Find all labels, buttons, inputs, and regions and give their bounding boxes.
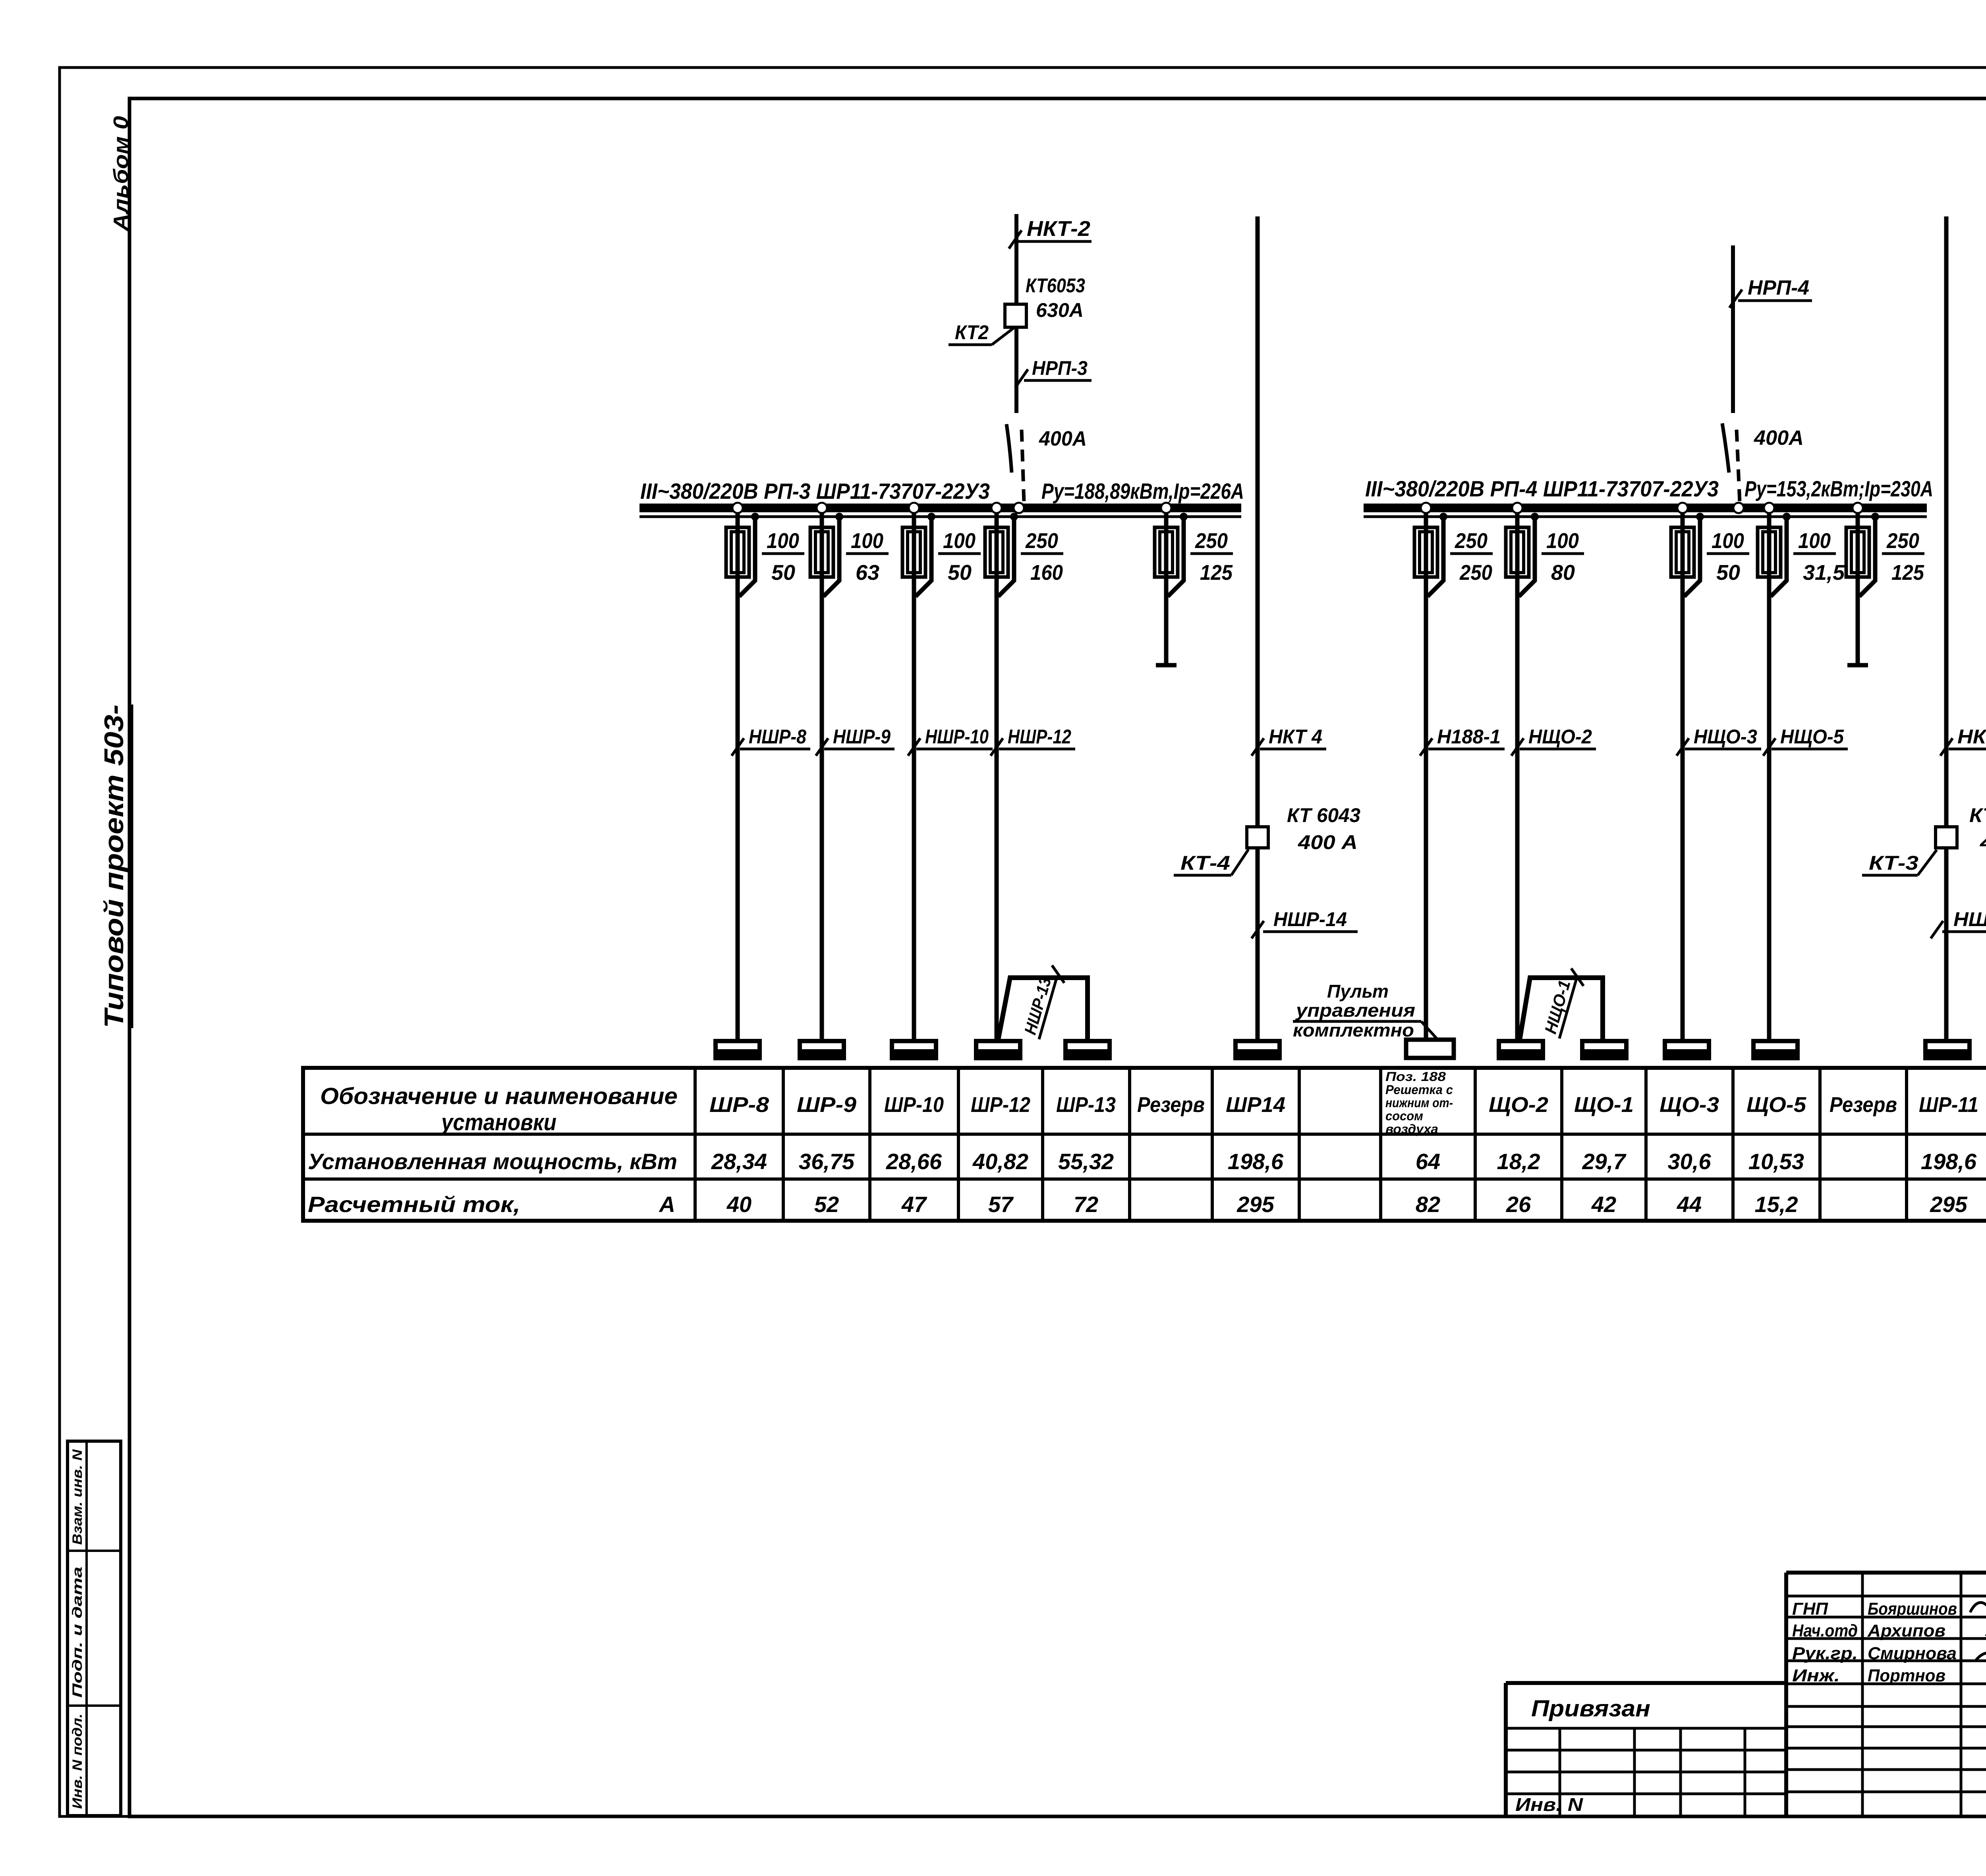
svg-text:Поз. 188: Поз. 188 [1385,1069,1446,1084]
svg-text:КТ-4: КТ-4 [1180,852,1230,874]
svg-text:198,6: 198,6 [1921,1149,1977,1174]
svg-text:Архипов: Архипов [1867,1621,1945,1641]
svg-text:III~380/220В РП-3 ШР11-73707: III~380/220В РП-3 ШР11-73707-22У3 [640,479,990,504]
svg-text:50: 50 [771,561,795,585]
svg-text:Резерв: Резерв [1830,1093,1897,1117]
svg-text:Рук.гр.: Рук.гр. [1792,1644,1858,1663]
svg-text:50: 50 [1716,561,1740,585]
svg-text:400А: 400А [1754,427,1804,450]
svg-text:44: 44 [1677,1192,1702,1217]
svg-text:100: 100 [1546,529,1579,553]
svg-text:НШР-11: НШР-11 [1953,908,1986,930]
svg-text:ШР-10: ШР-10 [884,1093,944,1117]
svg-text:72: 72 [1074,1192,1098,1217]
svg-text:15,2: 15,2 [1755,1192,1798,1217]
svg-text:комплектно: комплектно [1293,1020,1414,1040]
svg-text:Альбом 0: Альбом 0 [110,116,133,232]
svg-text:250: 250 [1455,529,1488,553]
svg-text:НШР-14: НШР-14 [1273,908,1347,930]
svg-text:Инв. N подл.: Инв. N подл. [70,1714,85,1809]
svg-text:ШР-13: ШР-13 [1056,1093,1116,1117]
svg-text:ЩО-1: ЩО-1 [1574,1093,1634,1117]
svg-text:НКТ3: НКТ3 [1957,726,1986,748]
svg-text:36,75: 36,75 [799,1149,855,1174]
svg-text:Решетка с: Решетка с [1385,1083,1453,1097]
svg-text:ШР-12: ШР-12 [971,1093,1030,1117]
svg-text:Взам. инв. N: Взам. инв. N [70,1449,85,1545]
svg-text:НШР-8: НШР-8 [749,726,806,748]
svg-text:Резерв: Резерв [1137,1093,1205,1117]
svg-text:Н188-1: Н188-1 [1437,726,1501,748]
svg-text:55,32: 55,32 [1058,1149,1114,1174]
svg-text:КТ 6043: КТ 6043 [1969,804,1986,826]
svg-text:50: 50 [948,561,972,585]
svg-text:250: 250 [1195,529,1228,553]
svg-text:ШР-9: ШР-9 [797,1093,856,1117]
svg-text:28,66: 28,66 [886,1149,942,1174]
svg-text:Установленная мощность, кВт: Установленная мощность, кВт [308,1149,677,1174]
svg-text:250: 250 [1459,561,1492,585]
svg-text:НКТ 4: НКТ 4 [1269,726,1322,748]
svg-text:Инж.: Инж. [1792,1666,1840,1685]
svg-text:НЩО-3: НЩО-3 [1694,726,1757,748]
svg-text:Типовой проект 503-: Типовой проект 503- [99,704,129,1028]
svg-text:ЩО-3: ЩО-3 [1660,1093,1719,1117]
svg-text:КТ2: КТ2 [955,321,989,344]
svg-text:80: 80 [1551,561,1575,585]
svg-text:40: 40 [726,1192,752,1217]
svg-text:НКТ-2: НКТ-2 [1027,217,1090,241]
svg-text:III~380/220В РП-4 ШР11-73707: III~380/220В РП-4 ШР11-73707-22У3 [1365,476,1719,501]
svg-text:40,82: 40,82 [972,1149,1028,1174]
svg-text:ЩО-2: ЩО-2 [1489,1093,1548,1117]
svg-text:250: 250 [1025,529,1058,553]
svg-text:Обозначение и наименование: Обозначение и наименование [320,1083,678,1109]
svg-text:250: 250 [1886,529,1919,553]
svg-text:10,53: 10,53 [1748,1149,1804,1174]
svg-text:Пульт: Пульт [1327,981,1389,1002]
svg-text:НЩО-5: НЩО-5 [1780,726,1844,748]
svg-text:125: 125 [1891,561,1924,585]
svg-text:Привязан: Привязан [1531,1696,1650,1722]
svg-text:КТ 6043: КТ 6043 [1287,804,1360,826]
svg-text:30,6: 30,6 [1668,1149,1712,1174]
svg-text:18,2: 18,2 [1497,1149,1540,1174]
svg-text:НРП-3: НРП-3 [1032,357,1088,379]
svg-text:КТ-3: КТ-3 [1869,852,1918,874]
svg-text:295: 295 [1236,1192,1274,1217]
svg-text:нижним от-: нижним от- [1385,1096,1453,1110]
svg-text:64: 64 [1416,1149,1440,1174]
svg-text:160: 160 [1030,561,1063,585]
svg-text:НШР-9: НШР-9 [833,726,891,748]
svg-text:100: 100 [1798,529,1831,553]
svg-text:28,34: 28,34 [711,1149,767,1174]
svg-text:управления: управления [1295,1000,1415,1021]
svg-text:НШР-10: НШР-10 [925,726,989,748]
svg-text:400А: 400А [1980,831,1986,853]
svg-text:ШР14: ШР14 [1226,1093,1285,1117]
svg-text:100: 100 [943,529,976,553]
svg-text:63: 63 [856,561,879,585]
svg-text:630А: 630А [1036,299,1084,321]
svg-text:Ру=153,2кВт;Iр=230А: Ру=153,2кВт;Iр=230А [1745,476,1933,501]
svg-text:Портнов: Портнов [1868,1666,1945,1685]
svg-text:400А: 400А [1039,427,1087,450]
svg-text:НЩО-2: НЩО-2 [1528,726,1592,748]
svg-text:31,5: 31,5 [1803,561,1845,585]
svg-text:295: 295 [1930,1192,1967,1217]
svg-text:100: 100 [851,529,883,553]
svg-text:100: 100 [1712,529,1744,553]
svg-text:Расчетный ток,: Расчетный ток, [308,1192,520,1217]
svg-text:ГНП: ГНП [1792,1599,1828,1619]
svg-text:57: 57 [988,1192,1014,1217]
svg-text:НШР-12: НШР-12 [1008,726,1071,748]
svg-text:сосом: сосом [1385,1109,1423,1123]
svg-text:Инв. N: Инв. N [1515,1794,1583,1815]
svg-text:ШР-8: ШР-8 [709,1093,769,1117]
svg-text:26: 26 [1506,1192,1531,1217]
svg-text:52: 52 [814,1192,839,1217]
svg-text:Подп. и дата: Подп. и дата [70,1567,85,1698]
svg-text:Нач.отд: Нач.отд [1792,1621,1858,1641]
svg-text:125: 125 [1200,561,1233,585]
svg-text:47: 47 [901,1192,927,1217]
svg-text:КТ6053: КТ6053 [1026,274,1085,297]
svg-text:100: 100 [767,529,799,553]
svg-text:198,6: 198,6 [1228,1149,1284,1174]
svg-text:А: А [659,1192,675,1217]
svg-text:82: 82 [1416,1192,1440,1217]
svg-text:400 А: 400 А [1298,831,1358,853]
svg-text:29,7: 29,7 [1582,1149,1627,1174]
svg-text:42: 42 [1591,1192,1616,1217]
svg-text:НРП-4: НРП-4 [1748,276,1809,299]
svg-text:Бояршинов: Бояршинов [1868,1599,1957,1619]
svg-text:установки: установки [440,1110,556,1135]
svg-text:Смирнова: Смирнова [1868,1644,1957,1663]
svg-text:ЩО-5: ЩО-5 [1746,1093,1806,1117]
svg-text:воздуха: воздуха [1385,1122,1438,1136]
svg-text:Ру=188,89кВт,Iр=226А: Ру=188,89кВт,Iр=226А [1041,479,1244,504]
svg-text:ШР-11: ШР-11 [1919,1093,1978,1117]
